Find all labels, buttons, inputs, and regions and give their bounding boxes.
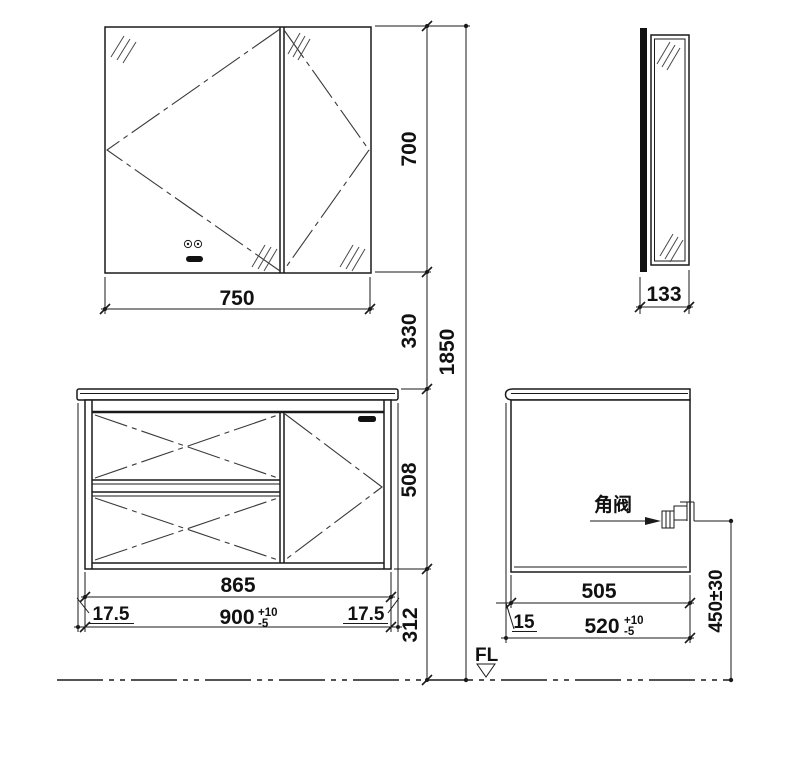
clearance-label: 312 (399, 607, 422, 642)
valve-label: 角阀 (594, 493, 632, 516)
counter-width-tol-minus: -5 (258, 618, 269, 630)
mirror-door-edge (640, 28, 647, 272)
mirror-depth-label: 133 (646, 283, 681, 306)
countertop (77, 389, 398, 400)
counter-depth-tol-minus: -5 (624, 626, 635, 638)
counter-width-label: 900 (219, 606, 254, 629)
mirror-height-label: 700 (398, 131, 421, 166)
mirror-outline (105, 27, 371, 273)
overhang-right-label: 17.5 (348, 604, 385, 625)
valve-height-dimension: 450±30 (694, 519, 733, 682)
overall-height-label: 1850 (436, 329, 459, 376)
mirror-body-outline (651, 35, 689, 265)
door-handle (358, 416, 376, 422)
mirror-cabinet-side-view (640, 28, 689, 272)
mirror-depth-dimension: 133 (635, 270, 694, 314)
vanity-height-label: 508 (398, 462, 421, 497)
overhang-left-label: 17.5 (93, 604, 130, 625)
mirror-width-dimension: 750 (100, 277, 375, 314)
floor-level-marker: FL (475, 645, 499, 677)
overall-height-dimension: 1850 (436, 24, 468, 682)
cabinet-side-outline (511, 400, 690, 572)
vanity-front-view (77, 389, 398, 569)
defogger-icon (186, 256, 203, 262)
countertop-side (506, 389, 691, 400)
counter-depth-label: 520 (584, 615, 619, 638)
floor-level-label: FL (475, 645, 499, 666)
cabinet-depth-label: 505 (581, 580, 616, 603)
mirror-width-label: 750 (219, 287, 254, 310)
cabinet-width-label: 865 (220, 574, 255, 597)
front-overhang-label: 15 (513, 612, 535, 633)
technical-drawing-canvas: 750 133 (0, 0, 790, 768)
valve-height-label: 450±30 (706, 569, 727, 632)
gap-label: 330 (398, 313, 421, 348)
drawing-svg: 750 133 (0, 0, 790, 768)
vanity-side-view: 角阀 (506, 389, 695, 572)
mirror-cabinet-front-view (105, 27, 371, 273)
